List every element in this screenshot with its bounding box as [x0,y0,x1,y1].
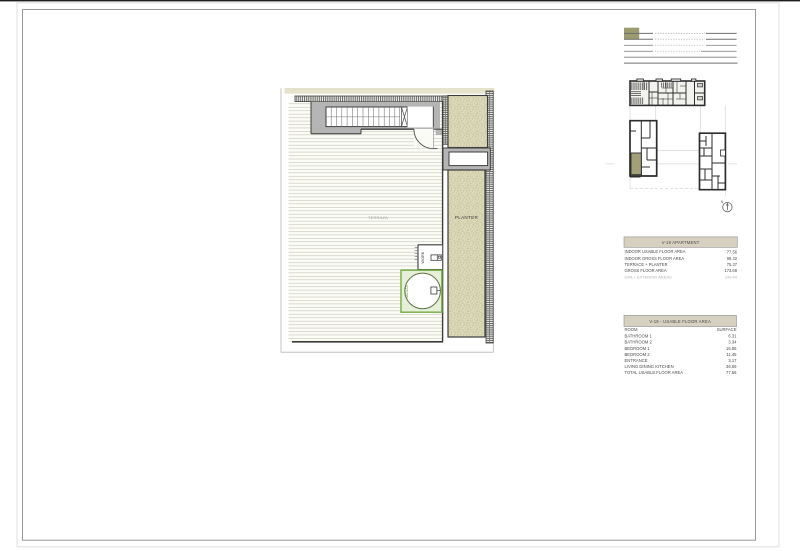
svg-text:GFA + EXTERIOR AREAS: GFA + EXTERIOR AREAS [625,275,673,280]
svg-text:TERRACE + PLANTER: TERRACE + PLANTER [625,262,668,267]
svg-text:ROOM: ROOM [625,327,639,332]
svg-text:77.56: 77.56 [726,370,737,375]
svg-text:11.45: 11.45 [726,352,737,357]
svg-text:36.69: 36.69 [726,364,737,369]
svg-text:3.17: 3.17 [728,358,737,363]
svg-text:V-19 - USABLE FLOOR AREA: V-19 - USABLE FLOOR AREA [649,319,711,324]
svg-text:TERRAZA: TERRAZA [368,215,388,220]
svg-text:6.31: 6.31 [728,334,737,339]
svg-text:PLANTER: PLANTER [455,215,479,220]
svg-text:INDOOR USABLE FLOOR AREA: INDOOR USABLE FLOOR AREA [625,249,686,254]
svg-text:TOTAL USABLE FLOOR AREA: TOTAL USABLE FLOOR AREA [625,370,684,375]
svg-text:GROSS FLOOR AREA: GROSS FLOOR AREA [625,268,667,273]
svg-text:JACUZZI: JACUZZI [405,285,409,298]
svg-text:98.32: 98.32 [727,256,738,261]
svg-text:ENTRANCE: ENTRANCE [625,358,648,363]
svg-text:BATHROOM 2: BATHROOM 2 [625,340,653,345]
svg-text:249.44: 249.44 [725,275,738,280]
svg-text:LIVING DINING KITCHEN: LIVING DINING KITCHEN [625,364,674,369]
svg-text:16.85: 16.85 [726,346,737,351]
svg-text:77.56: 77.56 [727,250,738,255]
svg-text:BEDROOM 2: BEDROOM 2 [625,352,651,357]
svg-text:V-19 APARTMENT: V-19 APARTMENT [662,240,700,245]
svg-text:173.68: 173.68 [724,268,737,273]
svg-text:75.37: 75.37 [727,262,738,267]
svg-text:BATHROOM 1: BATHROOM 1 [625,334,653,339]
svg-text:BEDROOM 1: BEDROOM 1 [625,346,651,351]
svg-text:3.34: 3.34 [728,340,737,345]
svg-text:INDOOR GROSS FLOOR AREA: INDOOR GROSS FLOOR AREA [625,256,685,261]
svg-text:WORK: WORK [421,251,425,263]
svg-text:SURFACE: SURFACE [717,327,737,332]
svg-text:N: N [721,200,724,204]
